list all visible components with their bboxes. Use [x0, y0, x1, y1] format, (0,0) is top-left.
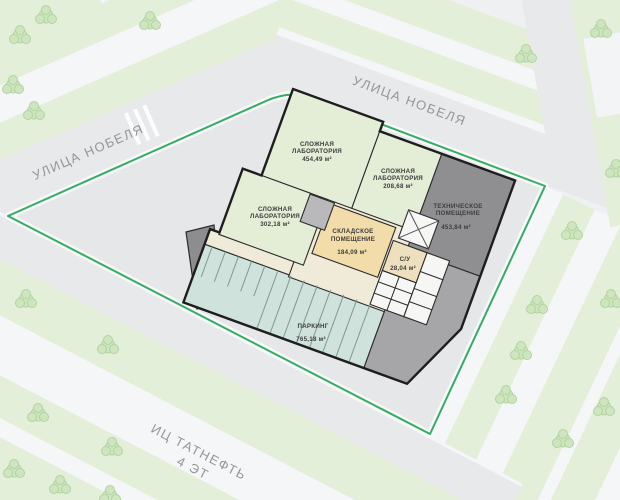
room-name: ПОМЕЩЕНИЕ [436, 210, 480, 217]
room-name: ТЕХНИЧЕСКОЕ [433, 203, 482, 210]
room-name: С/У [400, 256, 411, 263]
room-area: 453,84 м² [441, 224, 471, 231]
room-name: ПАРКИНГ [298, 323, 329, 330]
site-plan-canvas: УЛИЦА НОБЕЛЯ УЛИЦА НОБЕЛЯ ИЦ ТАТНЕФТЬ 4 … [0, 0, 620, 500]
room-area: 208,68 м² [383, 183, 413, 190]
room-name: ЛАБОРАТОРИЯ [250, 213, 300, 220]
room-name: ЛАБОРАТОРИЯ [292, 148, 342, 155]
room-name: СЛОЖНАЯ [381, 168, 415, 175]
room-area: 28,04 м² [390, 265, 416, 272]
room-name: ЛАБОРАТОРИЯ [373, 175, 423, 182]
room-area: 184,09 м² [337, 249, 367, 256]
room-name: ПОМЕЩЕНИЕ [331, 236, 375, 243]
site-plan: УЛИЦА НОБЕЛЯ УЛИЦА НОБЕЛЯ ИЦ ТАТНЕФТЬ 4 … [0, 0, 620, 500]
room-area: 765,18 м² [296, 336, 326, 343]
room-name: СЛОЖНАЯ [300, 141, 334, 148]
room-name: СКЛАДСКОЕ [332, 228, 373, 235]
room-name: СЛОЖНАЯ [258, 206, 292, 213]
room-area: 454,49 м² [302, 156, 332, 163]
room-area: 302,18 м² [260, 221, 290, 228]
